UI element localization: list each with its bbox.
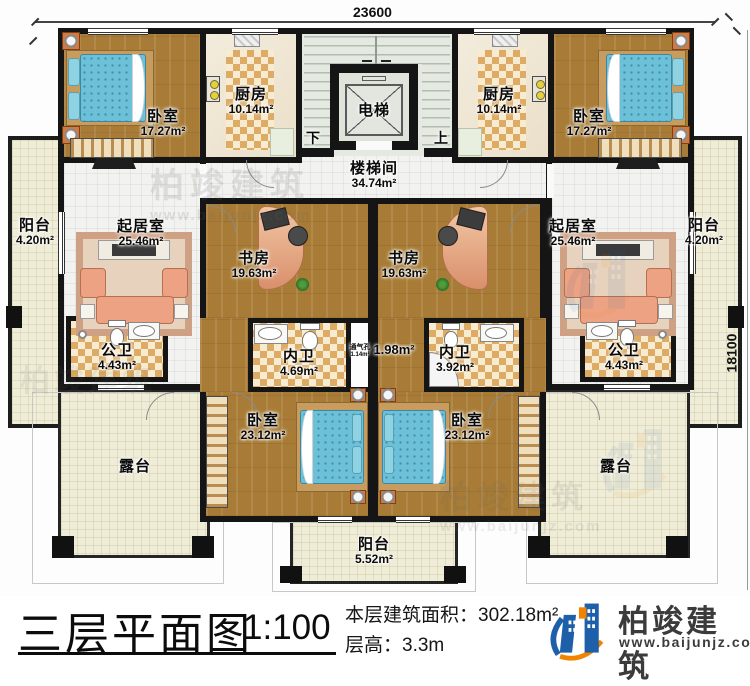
label-bedroom-top-right: 卧室17.27m²: [567, 108, 612, 139]
dimension-top-value: 23600: [353, 4, 392, 20]
toilet-tank: [442, 323, 460, 330]
floor-plan: 柏竣建筑www.baijunjz.com 柏竣建筑 柏竣建筑www.baijun…: [0, 0, 750, 596]
armchair: [162, 268, 188, 298]
bed-pillow: [352, 446, 362, 474]
watermark-logo-glyph: [560, 240, 640, 320]
label-balcony-bottom: 阳台5.52m²: [355, 536, 393, 567]
label-bedroom-top-left: 卧室17.27m²: [141, 108, 186, 139]
center-wall: [368, 198, 378, 522]
armchair: [646, 268, 672, 298]
nightstand: [380, 490, 396, 504]
plant: [296, 278, 309, 291]
terrace-pillar: [528, 536, 550, 558]
nightstand: [62, 32, 80, 50]
nightstand: [350, 490, 366, 504]
bath-sink: [133, 325, 155, 337]
balcony-pillar: [280, 566, 302, 583]
label-terrace-right: 露台: [600, 458, 632, 475]
wall-pillar-right: [728, 306, 744, 328]
label-bath-inner-left: 内卫4.69m²: [280, 348, 318, 379]
floor-drain: [658, 330, 667, 339]
stove: [532, 76, 546, 102]
dimension-line-top: [35, 21, 715, 23]
label-study-right: 书房19.63m²: [382, 250, 427, 281]
nightstand: [380, 388, 396, 402]
dimension-right-value: 18100: [723, 334, 739, 373]
company-logo-url: www.baijunjz.com: [619, 634, 750, 650]
title-underline: [18, 652, 336, 655]
kitchen-sink: [270, 128, 294, 156]
side-table: [80, 304, 95, 319]
window: [474, 28, 520, 35]
stair-landing-top: [304, 36, 450, 64]
elevator-door-gap: [356, 141, 392, 150]
watermark-text: 柏竣建筑www.baijunjz.com: [440, 472, 601, 535]
window: [606, 28, 666, 35]
label-balcony-left: 阳台4.20m²: [16, 217, 54, 248]
label-stairwell: 楼梯间34.74m²: [350, 160, 398, 191]
bed-pillow: [384, 414, 394, 442]
terrace-pillar: [666, 536, 688, 558]
label-bath-public-right: 公卫4.43m²: [605, 342, 643, 373]
drawing-scale: 1:100: [243, 608, 331, 648]
toilet-tank: [108, 320, 126, 327]
room-balcony-right: [686, 136, 742, 428]
side-table: [174, 304, 189, 319]
bed-pillow: [672, 58, 684, 86]
dimension-tick: [711, 18, 719, 26]
office-chair: [288, 226, 308, 246]
label-bedroom-bottom-right: 卧室23.12m²: [445, 412, 490, 443]
toilet-tank: [300, 323, 320, 330]
corner-mark: [725, 13, 733, 21]
kitchen-sink: [458, 128, 482, 156]
watermark-text: 柏竣建筑www.baijunjz.com: [150, 158, 311, 224]
label-stair-down: 下: [306, 130, 320, 146]
bed-pillow: [672, 92, 684, 120]
bed-pillow: [68, 58, 80, 86]
label-living-left: 起居室25.46m²: [117, 218, 165, 249]
label-terrace-left: 露台: [119, 458, 151, 475]
wardrobe: [598, 138, 682, 158]
bed-pillow: [352, 414, 362, 442]
stair-bottom-wall-right: [424, 148, 458, 157]
plant: [436, 278, 449, 291]
label-bath-inner-right: 内卫3.92m²: [436, 344, 474, 375]
nightstand: [350, 388, 366, 402]
label-hall-area: 1.98m²: [373, 343, 414, 358]
terrace-pillar: [192, 536, 214, 558]
label-balcony-right: 阳台4.20m²: [685, 217, 723, 248]
bed-pillow: [68, 92, 80, 120]
tv: [616, 158, 660, 169]
side-table: [658, 304, 673, 319]
bed-blanket-fold: [301, 410, 313, 484]
label-elevator: 电梯: [358, 102, 390, 119]
label-study-left: 书房19.63m²: [232, 250, 277, 281]
label-vent: 通气孔1.14m²: [350, 344, 371, 359]
window: [88, 28, 148, 35]
door-gap: [547, 164, 554, 198]
label-bath-public-left: 公卫4.43m²: [98, 342, 136, 373]
nightstand: [672, 32, 690, 50]
floor-height-note: 层高：3.3m: [345, 630, 444, 657]
sliding-door: [604, 384, 650, 391]
wardrobe: [206, 396, 228, 508]
floor-drain: [78, 330, 87, 339]
label-living-right: 起居室25.46m²: [549, 218, 597, 249]
label-kitchen-left: 厨房10.14m²: [229, 86, 274, 117]
stair-bottom-wall-left: [296, 148, 334, 157]
stair-break-mark: [362, 60, 372, 62]
corner-mark: [733, 27, 741, 35]
floor-area-note: 本层建筑面积：302.18m²: [345, 600, 558, 627]
corner-mark: [29, 37, 37, 45]
bath-sink: [258, 327, 282, 340]
label-bedroom-bottom-left: 卧室23.12m²: [241, 412, 286, 443]
balcony-door: [396, 516, 430, 523]
armchair: [80, 268, 106, 298]
wardrobe: [70, 138, 154, 158]
balcony-door: [318, 516, 352, 523]
balcony-pillar: [444, 566, 466, 583]
label-kitchen-right: 厨房10.14m²: [477, 86, 522, 117]
dimension-line-right: [747, 30, 748, 590]
company-logo-icon: [545, 596, 611, 662]
wall-pillar-left: [6, 306, 22, 328]
toilet-tank: [618, 320, 636, 327]
title-block: 三层平面图 1:100 本层建筑面积：302.18m² 层高：3.3m 柏竣建筑…: [0, 596, 750, 664]
elevator-sill: [362, 76, 386, 81]
tv: [92, 158, 136, 169]
bed-pillow: [384, 446, 394, 474]
terrace-pillar: [52, 536, 74, 558]
stove: [206, 76, 220, 102]
window: [58, 212, 65, 274]
bath-sink: [485, 327, 507, 339]
office-chair: [438, 226, 458, 246]
stair-break-mark: [381, 60, 391, 62]
bath-sink: [591, 325, 613, 337]
window: [232, 28, 278, 35]
label-stair-up: 上: [434, 130, 448, 146]
